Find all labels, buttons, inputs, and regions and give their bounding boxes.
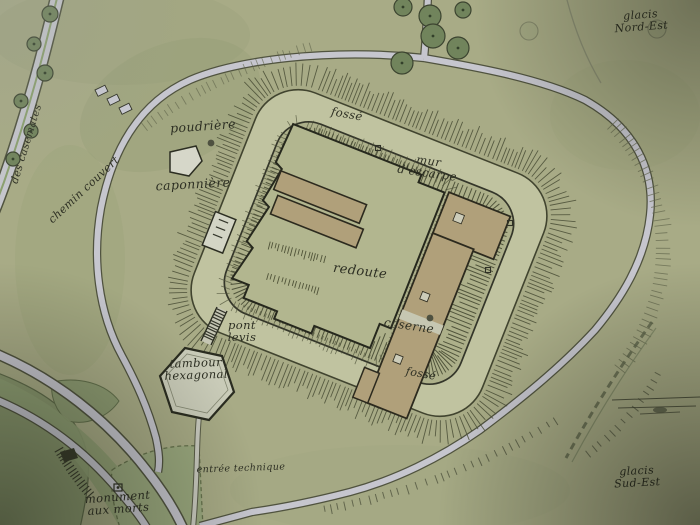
rampart-hachure-tick — [501, 353, 518, 360]
rampart-hachure-tick — [498, 360, 522, 369]
rampart-hachure-tick — [274, 362, 283, 385]
step-tick — [87, 492, 94, 498]
rampart-hachure-tick — [231, 344, 238, 362]
glacis-hachure-tick — [644, 313, 657, 318]
rampart-hachure-tick — [483, 393, 508, 406]
rampart-hachure-tick — [380, 92, 389, 115]
powder-magazine-dot — [208, 140, 215, 147]
rampart-hachure-tick — [491, 377, 512, 385]
rampart-hachure-tick — [340, 388, 349, 410]
rampart-hachure-tick — [536, 262, 552, 268]
glacis-hachure-tick — [303, 43, 306, 53]
rampart-hachure-tick — [345, 389, 352, 406]
rampart-hachure-tick — [175, 266, 191, 272]
rampart-hachure-tick — [307, 374, 313, 389]
rampart-hachure-tick — [266, 359, 275, 382]
rampart-hachure-tick — [505, 342, 523, 349]
glacis-hachure-tick — [597, 441, 601, 446]
glacis-hachure-tick — [610, 430, 616, 436]
faint-tree-icon — [520, 22, 538, 40]
rampart-hachure-tick — [481, 396, 500, 406]
rampart-hachure-tick — [494, 370, 511, 377]
fort-map-panel: glacis Nord-Estdes casematespoudrièrecap… — [0, 0, 700, 525]
glacis-hachure-tick — [651, 290, 662, 293]
rampart-hachure-tick — [519, 307, 538, 314]
rampart-hachure-tick — [530, 279, 554, 289]
rampart-hachure-tick — [190, 217, 209, 225]
glacis-hachure-tick — [502, 446, 506, 455]
rampart-hachure-tick — [429, 111, 438, 134]
rampart-hachure-tick — [283, 366, 292, 388]
rampart-hachure-tick — [261, 356, 267, 371]
glacis-hachure-tick — [655, 372, 661, 375]
poudriere-structure — [170, 146, 202, 176]
rampart-hachure-tick — [195, 193, 218, 202]
rampart-hachure-tick — [198, 210, 213, 216]
rampart-hachure-tick — [180, 313, 195, 330]
tree-center-dot — [33, 43, 36, 46]
glacis-hachure-tick — [592, 446, 597, 452]
glacis-hachure-tick — [529, 432, 532, 438]
tambour-hexagonal-outline — [160, 348, 234, 420]
faint-tree-icon — [648, 20, 666, 38]
rampart-hachure-tick — [216, 155, 234, 162]
glacis-hachure-tick — [509, 443, 513, 451]
glacis-hachure-tick — [604, 435, 610, 441]
rampart-hachure-tick — [352, 83, 360, 103]
rampart-hachure-tick — [199, 189, 220, 197]
glacis-hachure-tick — [621, 419, 625, 423]
glacis-hachure-tick — [654, 278, 668, 280]
rampart-hachure-tick — [342, 77, 351, 99]
hedge-line — [572, 328, 656, 462]
rampart-hachure-tick — [384, 92, 393, 116]
glacis-hachure-tick — [643, 391, 649, 395]
rampart-hachure-tick — [454, 122, 463, 144]
glacis-hachure-tick — [522, 436, 525, 442]
rampart-hachure-tick — [213, 171, 228, 177]
rampart-hachure-tick — [194, 205, 214, 213]
rampart-hachure-tick — [450, 119, 459, 142]
glacis-hachure-tick — [654, 273, 667, 275]
rampart-hachure-tick — [183, 243, 199, 249]
rampart-hachure-tick — [334, 385, 340, 401]
tree-center-dot — [49, 13, 52, 16]
rampart-hachure-tick — [233, 346, 242, 368]
rampart-hachure-tick — [310, 65, 320, 87]
rampart-hachure-tick — [515, 147, 523, 168]
rampart-hachure-tick — [550, 192, 576, 214]
rampart-hachure-tick — [540, 253, 563, 262]
rampart-hachure-tick — [218, 152, 235, 159]
rampart-hachure-tick — [327, 69, 337, 93]
rampart-hachure-tick — [477, 401, 498, 414]
rampart-hachure-tick — [335, 76, 343, 97]
rampart-hachure-tick — [514, 318, 530, 324]
rampart-hachure-tick — [470, 126, 479, 150]
glacis-hachure-tick — [650, 295, 663, 299]
rampart-hachure-tick — [179, 317, 197, 340]
rampart-hachure-tick — [433, 420, 448, 442]
rampart-hachure-tick — [177, 232, 202, 242]
rampart-hachure-tick — [209, 180, 224, 186]
rampart-hachure-tick — [535, 165, 546, 181]
tree-center-dot — [462, 9, 465, 12]
rampart-hachure-tick — [408, 415, 417, 437]
rampart-hachure-tick — [345, 83, 352, 101]
rampart-hachure-tick — [173, 254, 194, 262]
glacis-hachure-tick — [553, 418, 558, 425]
rampart-hachure-tick — [520, 303, 537, 310]
rampart-hachure-tick — [197, 198, 217, 206]
rampart-hachure-tick — [535, 267, 560, 277]
tree-center-dot — [402, 6, 405, 9]
terrain-patch — [230, 445, 570, 525]
rampart-hachure-tick — [257, 71, 279, 92]
rampart-hachure-tick — [431, 420, 441, 436]
tree-center-dot — [30, 130, 33, 133]
glacis-hachure-tick — [655, 233, 667, 234]
glacis-hachure-tick — [653, 283, 667, 286]
rampart-hachure-tick — [216, 159, 233, 166]
tree-center-dot — [44, 72, 47, 75]
dot-marker — [427, 315, 434, 322]
rampart-hachure-tick — [243, 349, 249, 365]
terrain-patch — [550, 60, 700, 170]
glacis-hachure-tick — [648, 301, 659, 305]
glacis-hachure-tick — [627, 413, 633, 418]
rampart-hachure-tick — [499, 356, 520, 364]
rampart-hachure-tick — [496, 365, 513, 372]
rampart-hachure-tick — [307, 375, 316, 399]
glacis-hachure-tick — [655, 224, 672, 226]
rampart-hachure-tick — [531, 275, 553, 284]
rampart-hachure-tick — [546, 183, 560, 197]
tree-center-dot — [12, 158, 15, 161]
sketch-blob — [653, 407, 667, 413]
glacis-hachure-tick — [647, 386, 654, 391]
glacis-hachure-tick — [656, 258, 671, 259]
glacis-hachure-tick — [651, 379, 657, 383]
rampart-hachure-tick — [172, 300, 189, 315]
rampart-hachure-tick — [479, 138, 485, 154]
rampart-hachure-tick — [324, 382, 333, 404]
rampart-hachure-tick — [416, 418, 425, 438]
rampart-hachure-tick — [532, 155, 548, 180]
rampart-hachure-tick — [542, 249, 561, 257]
rampart-hachure-tick — [279, 364, 289, 388]
rampart-hachure-tick — [235, 347, 245, 372]
rampart-hachure-tick — [485, 390, 504, 398]
rampart-hachure-tick — [502, 349, 522, 357]
rampart-hachure-tick — [302, 65, 314, 86]
rampart-hachure-tick — [533, 272, 550, 279]
rampart-hachure-tick — [497, 138, 506, 161]
glacis-hachure-tick — [586, 451, 591, 458]
glacis-hachure-tick — [309, 43, 312, 52]
tree-center-dot — [20, 100, 23, 103]
rampart-hachure-tick — [545, 241, 568, 250]
rampart-hachure-tick — [528, 283, 552, 292]
rampart-hachure-tick — [538, 257, 562, 266]
glacis-hachure-tick — [615, 425, 621, 431]
monument-dot — [117, 486, 120, 489]
rampart-hachure-tick — [396, 99, 404, 120]
rampart-hachure-tick — [548, 233, 573, 243]
tree-center-dot — [432, 35, 435, 38]
glacis-hachure-tick — [515, 440, 519, 448]
rampart-hachure-tick — [269, 360, 279, 385]
rampart-hachure-tick — [288, 367, 296, 387]
fort-map-drawing — [0, 0, 700, 525]
tree-center-dot — [401, 62, 404, 65]
tree-center-dot — [457, 47, 460, 50]
rampart-hachure-tick — [492, 373, 512, 381]
glacis-hachure-tick — [538, 427, 542, 434]
rampart-hachure-tick — [360, 83, 369, 107]
rampart-hachure-tick — [517, 310, 533, 317]
rampart-hachure-tick — [527, 286, 544, 293]
glacis-hachure-tick — [546, 422, 549, 427]
rampart-hachure-tick — [488, 385, 512, 395]
glacis-hachure-tick — [646, 307, 658, 311]
rampart-hachure-tick — [471, 407, 488, 420]
sketch-mark — [612, 397, 700, 400]
rampart-hachure-tick — [318, 67, 327, 90]
rampart-hachure-tick — [294, 369, 300, 383]
rampart-hachure-tick — [253, 354, 262, 376]
tree-center-dot — [429, 15, 432, 18]
glacis-hachure-tick — [654, 219, 670, 221]
glacis-hachure-tick — [632, 406, 638, 411]
rampart-hachure-tick — [348, 79, 357, 102]
rampart-hachure-tick — [172, 270, 189, 278]
glacis-hachure-tick — [655, 265, 670, 266]
rampart-hachure-tick — [262, 357, 271, 380]
